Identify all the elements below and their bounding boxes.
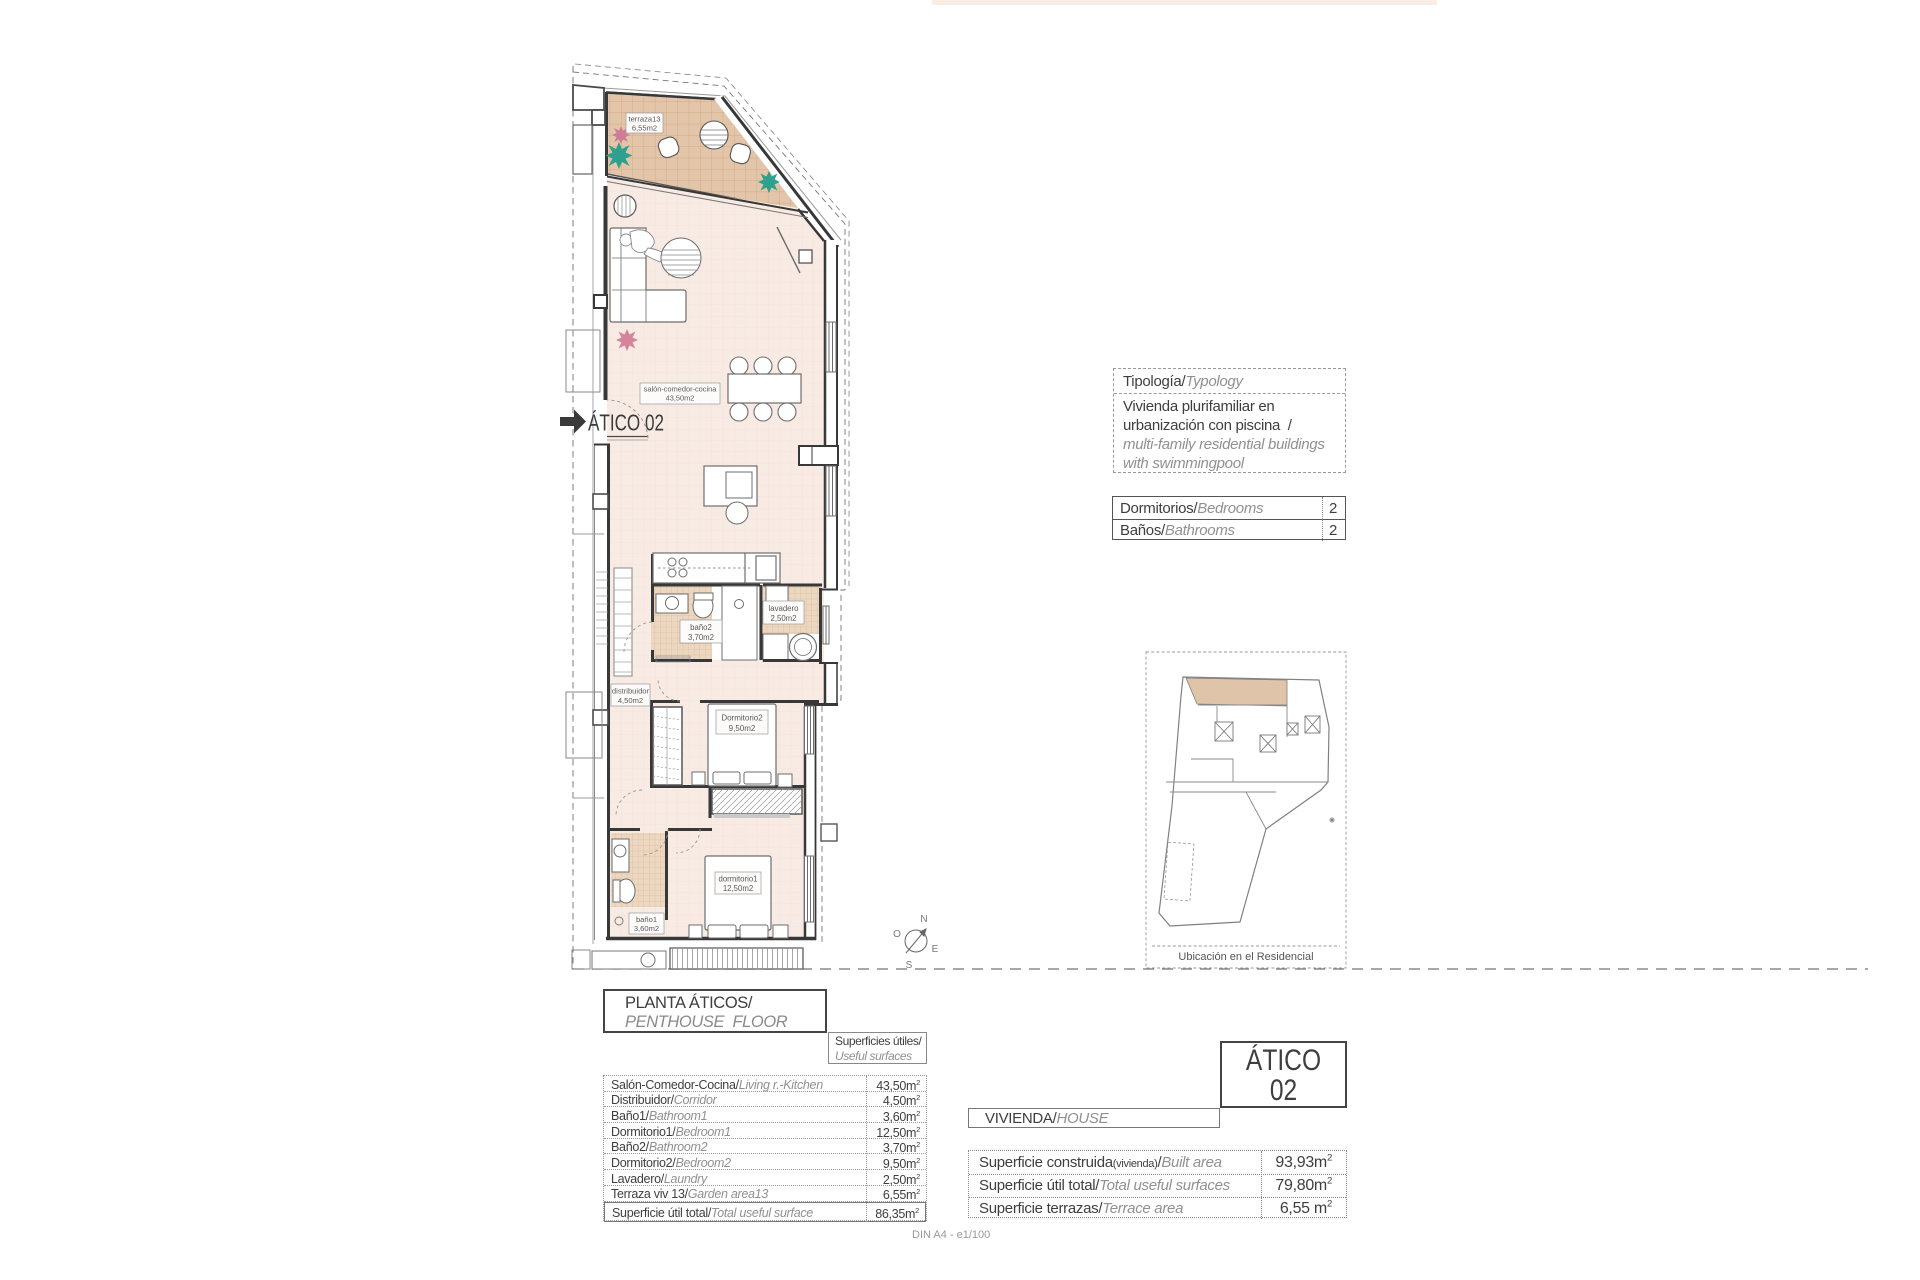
svg-text:Dormitorio2: Dormitorio2: [721, 714, 763, 723]
svg-text:6,55m2: 6,55m2: [632, 124, 657, 133]
svg-text:43,50m2: 43,50m2: [666, 394, 695, 403]
svg-text:distribuidor: distribuidor: [612, 687, 650, 696]
svg-text:9,50m2: 9,50m2: [729, 724, 756, 733]
svg-text:12,50m2: 12,50m2: [723, 884, 753, 893]
svg-text:4,50m2: 4,50m2: [618, 696, 643, 705]
svg-text:terraza13: terraza13: [628, 115, 660, 124]
svg-text:baño1: baño1: [636, 915, 657, 924]
svg-text:Ubicación en el Residencial: Ubicación en el Residencial: [1178, 951, 1313, 963]
svg-text:3,70m2: 3,70m2: [688, 633, 714, 642]
svg-text:baño2: baño2: [690, 623, 712, 632]
svg-text:ÁTICO 02: ÁTICO 02: [588, 410, 664, 436]
svg-text:S: S: [906, 960, 913, 971]
svg-text:3,60m2: 3,60m2: [634, 924, 659, 933]
svg-text:N: N: [920, 914, 927, 925]
svg-text:salón-comedor-cocina: salón-comedor-cocina: [644, 385, 718, 394]
svg-text:O: O: [893, 929, 901, 940]
svg-text:E: E: [932, 944, 939, 955]
svg-text:2,50m2: 2,50m2: [770, 614, 796, 623]
svg-text:lavadero: lavadero: [769, 604, 800, 613]
svg-text:dormitorio1: dormitorio1: [719, 875, 758, 884]
